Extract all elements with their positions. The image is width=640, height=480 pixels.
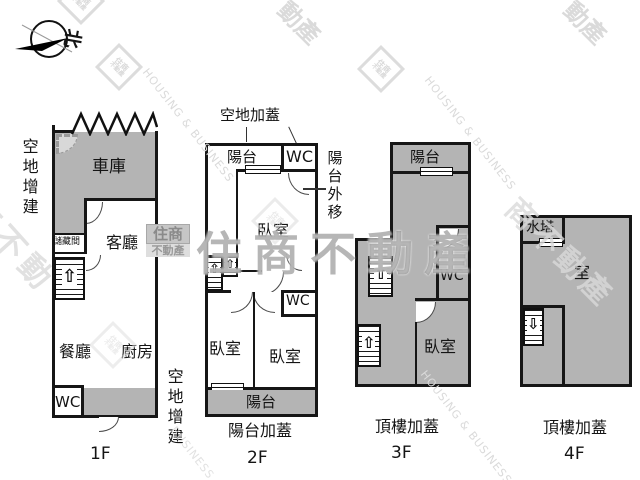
- wall: [281, 290, 284, 316]
- wall: [81, 385, 84, 417]
- brand-logo-text: 住商: [146, 224, 190, 244]
- wall: [520, 384, 632, 387]
- brand-logo-watermark: 住商 不動產: [95, 43, 143, 91]
- stair-down-arrow-icon: ⇩: [527, 317, 540, 332]
- wall: [562, 305, 565, 387]
- brand-logo-watermark: 住商 不動產: [89, 321, 137, 369]
- storage-label: 儲藏間: [53, 238, 80, 248]
- floor3-note-bottom: 頂樓加蓋: [375, 418, 439, 436]
- dining-room-label: 餐廳: [59, 343, 91, 361]
- stair-up-arrow-icon: ⇧: [362, 335, 375, 351]
- wall: [415, 298, 469, 301]
- door-arc: [86, 202, 103, 224]
- door-arc: [288, 173, 309, 195]
- bedroom-label: 臥室: [424, 338, 456, 356]
- door-arc: [99, 417, 119, 432]
- brand-logo-watermark-center: 住商 不動產: [146, 224, 190, 257]
- window: [245, 165, 281, 174]
- brand-watermark-text: 住商不動產: [196, 218, 481, 284]
- wall: [52, 233, 87, 235]
- wall: [281, 143, 284, 171]
- floor2-label: 2F: [247, 449, 268, 468]
- wc-label: WC: [286, 148, 313, 166]
- door-arc: [86, 255, 101, 271]
- floor4-label: 4F: [564, 445, 585, 464]
- watermark-fragment: 動產: [557, 0, 616, 51]
- wall: [253, 292, 255, 387]
- wall: [52, 252, 87, 254]
- floor3-label: 3F: [391, 444, 412, 463]
- wc-label: WC: [55, 394, 80, 411]
- door-arc: [231, 292, 253, 313]
- balcony-label: 陽台: [246, 394, 276, 411]
- wall: [205, 414, 318, 417]
- wall: [205, 290, 231, 293]
- window: [420, 167, 453, 176]
- floor2-note-bottom: 陽台加蓋: [228, 422, 292, 440]
- floor2-note-right: 陽台外移: [326, 150, 343, 222]
- floor2-note-top: 空地加蓋: [220, 107, 280, 124]
- living-room-label: 客廳: [106, 234, 138, 252]
- garage-label: 車庫: [92, 158, 126, 177]
- wall: [390, 142, 471, 145]
- watermark-fragment: BUSINESS: [168, 424, 217, 480]
- wall: [205, 143, 318, 146]
- leader-line: [303, 188, 326, 190]
- wc-label: WC: [286, 294, 310, 309]
- brand-logo-subtext: 不動產: [146, 244, 190, 257]
- wall: [155, 131, 158, 418]
- rear-addition-area: [84, 388, 156, 415]
- garage-area: [54, 199, 84, 235]
- garage-rolling-gate-icon: [70, 111, 158, 136]
- watermark-fragment: 動產: [271, 0, 330, 51]
- door-arc: [253, 292, 275, 313]
- wall: [355, 384, 471, 387]
- bedroom-label: 臥室: [209, 340, 241, 358]
- wall: [629, 215, 632, 387]
- floorplan-image: 住商 不動產 住商 不動產 住商 不動產 住商 不動產 住商 不動產 動產 動產…: [0, 0, 640, 480]
- floor1-label: 1F: [90, 445, 111, 464]
- wall: [52, 385, 83, 388]
- north-label: 北: [60, 27, 84, 49]
- wall: [84, 198, 157, 201]
- brand-logo-watermark: 住商 不動產: [357, 45, 405, 93]
- wall: [84, 233, 87, 254]
- balcony-label: 陽台: [227, 149, 257, 166]
- floor4-note-bottom: 頂樓加蓋: [543, 419, 607, 437]
- balcony-label: 陽台: [410, 149, 440, 166]
- leader-line: [288, 127, 297, 144]
- floor1-note-left: 空地增建: [20, 138, 38, 218]
- wall: [281, 314, 318, 317]
- leader-line: [246, 127, 247, 142]
- wall: [84, 198, 87, 235]
- bedroom-label: 臥室: [269, 348, 301, 366]
